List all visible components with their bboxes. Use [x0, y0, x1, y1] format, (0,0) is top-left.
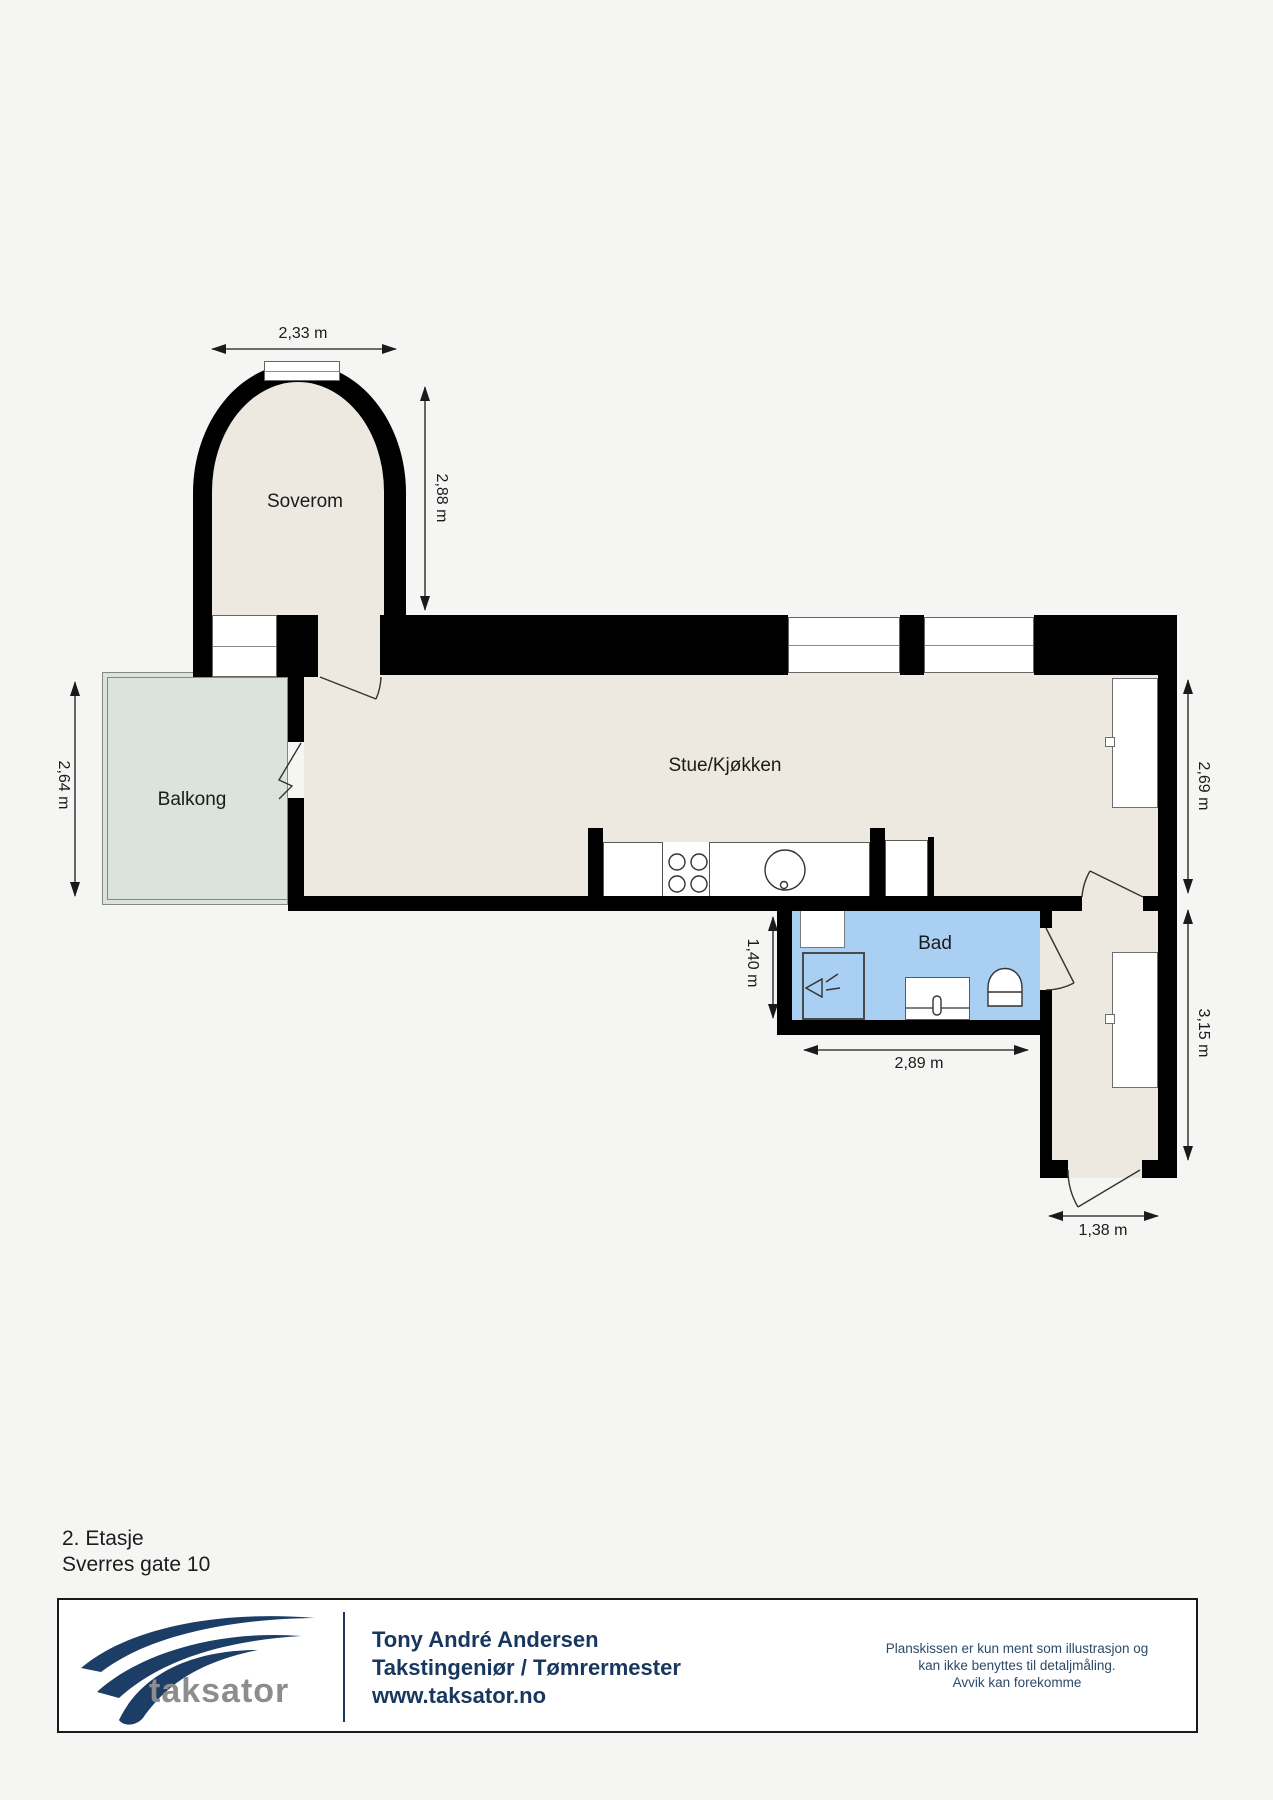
- bedroom-door-leaf: [320, 677, 376, 699]
- fixture-symbols: [669, 850, 1022, 1015]
- balcony-door-symbol: [279, 743, 301, 799]
- dim-label-bath-width: 2,89 m: [895, 1055, 944, 1073]
- room-label-stue-kjokken: Stue/Kjøkken: [669, 755, 782, 777]
- toilet-icon: [988, 969, 1022, 1007]
- dim-label-bedroom-height: 2,88 m: [432, 474, 450, 523]
- dim-label-hall-height: 3,15 m: [1194, 1009, 1212, 1058]
- burner-icon: [691, 854, 707, 870]
- bedroom-door-arc: [376, 677, 381, 699]
- entry-door-arc: [1068, 1170, 1078, 1207]
- burner-icon: [691, 876, 707, 892]
- hall-door-arc: [1082, 871, 1090, 897]
- shower-spray-icon: [826, 974, 840, 990]
- shower-head-icon: [806, 979, 822, 997]
- room-label-soverom: Soverom: [267, 491, 343, 513]
- entry-door-leaf: [1078, 1170, 1140, 1207]
- dim-label-bath-depth: 1,40 m: [743, 939, 761, 988]
- dim-label-bedroom-width: 2,33 m: [279, 325, 328, 343]
- faucet-icon: [933, 996, 941, 1015]
- hall-door-leaf: [1090, 871, 1143, 897]
- bathroom-door-leaf: [1046, 928, 1074, 983]
- dim-label-balcony-depth: 2,64 m: [54, 761, 72, 810]
- room-label-bad: Bad: [918, 933, 952, 955]
- plan-overlay: [0, 0, 1273, 1800]
- dim-label-entry-width: 1,38 m: [1079, 1222, 1128, 1240]
- dim-label-living-right: 2,69 m: [1194, 762, 1212, 811]
- sink-icon: [765, 850, 805, 890]
- burner-icon: [669, 854, 685, 870]
- room-label-balkong: Balkong: [158, 789, 227, 811]
- bathroom-door-arc: [1046, 983, 1074, 990]
- dimension-lines: [75, 349, 1188, 1216]
- burner-icon: [669, 876, 685, 892]
